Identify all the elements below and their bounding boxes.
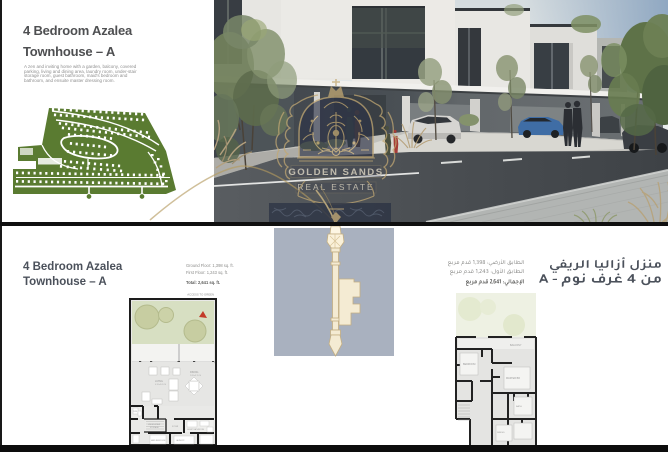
svg-text:DRESS: DRESS: [497, 432, 505, 434]
svg-text:DINING: DINING: [190, 371, 199, 374]
svg-text:ACCESS TO GREEN: ACCESS TO GREEN: [187, 293, 214, 297]
svg-text:LIVING: LIVING: [155, 380, 163, 383]
svg-text:2.85x3.15 M: 2.85x3.15 M: [190, 375, 201, 377]
svg-text:GUEST BATHROOM: GUEST BATHROOM: [187, 428, 204, 431]
svg-text:BALCONY: BALCONY: [510, 344, 522, 347]
svg-text:PWD: PWD: [133, 411, 138, 413]
svg-text:MASTER BR: MASTER BR: [506, 377, 520, 380]
svg-text:STORAGE: STORAGE: [150, 426, 160, 429]
svg-text:GOLDEN SANDS: GOLDEN SANDS: [288, 167, 383, 178]
svg-text:REAL ESTATE: REAL ESTATE: [297, 182, 374, 192]
svg-text:BEDROOM: BEDROOM: [463, 363, 475, 366]
svg-text:UNDER-STAIR: UNDER-STAIR: [148, 423, 161, 426]
svg-text:MAID BEDROOM: MAID BEDROOM: [151, 439, 166, 442]
svg-text:FOYER: FOYER: [172, 426, 179, 428]
svg-text:LAUNDRY: LAUNDRY: [176, 439, 185, 442]
svg-text:BATH: BATH: [516, 405, 522, 408]
svg-text:4.35x3.05 M: 4.35x3.05 M: [155, 384, 166, 386]
